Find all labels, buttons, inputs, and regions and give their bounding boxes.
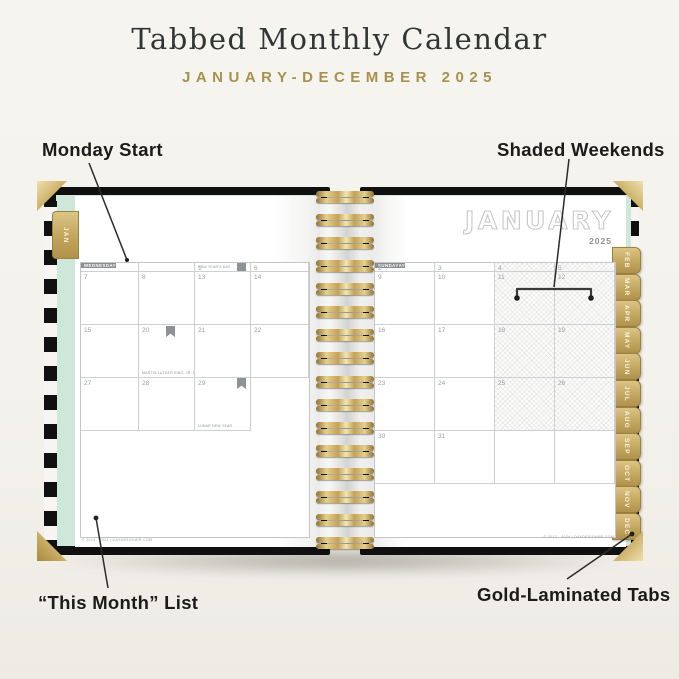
- cover-top-edge: [50, 187, 330, 195]
- calendar-cell: 28: [139, 378, 195, 431]
- day-number: 19: [558, 327, 565, 334]
- calendar-cell: 8: [139, 272, 195, 325]
- day-number: 18: [498, 327, 505, 334]
- callout-label-shaded-weekends: Shaded Weekends: [497, 139, 665, 161]
- tab-jun: JUN: [612, 353, 641, 380]
- day-number: 31: [438, 433, 445, 440]
- day-number: 10: [438, 274, 445, 281]
- bookmark-flag-icon: [166, 326, 175, 337]
- month-name: JANUARY: [465, 206, 614, 235]
- calendar-cell: 24: [435, 378, 495, 431]
- coil-loop: [316, 237, 374, 251]
- calendar-cell: 21: [195, 325, 251, 378]
- day-number: 23: [378, 380, 385, 387]
- day-number: 26: [558, 380, 565, 387]
- tab-feb: FEB: [612, 247, 641, 274]
- calendar-cell: 12: [555, 272, 615, 325]
- tab-dec: DEC: [612, 513, 641, 540]
- coil-loop: [316, 191, 374, 205]
- bookmark-flag-icon: [237, 378, 246, 389]
- cover-bottom-edge: [360, 546, 633, 555]
- callout-label-this-month-list: “This Month” List: [38, 592, 198, 614]
- tab-oct: OCT: [612, 460, 641, 487]
- callout-label-gold-tabs: Gold-Laminated Tabs: [477, 584, 670, 606]
- tab-apr: APR: [612, 300, 641, 327]
- day-number: 14: [254, 274, 261, 281]
- calendar-cell: 1NEW YEAR'S DAY: [195, 263, 251, 272]
- month-year: 2025: [374, 236, 614, 246]
- calendar-cell: 11: [495, 272, 555, 325]
- coil-loop: [316, 445, 374, 459]
- bookmark-flag-icon: [237, 263, 246, 272]
- calendar-cell: 29LUNAR NEW YEAR: [195, 378, 251, 431]
- calendar-cell: 30: [375, 431, 435, 484]
- day-number: 20: [142, 327, 149, 334]
- planner-book: JAN JANUARY 2025 THIS MONTHMONDAYTUESDAY…: [40, 183, 640, 559]
- coil-loop: [316, 376, 374, 390]
- calendar-cell: 16: [375, 325, 435, 378]
- day-number: 15: [84, 327, 91, 334]
- day-number: 12: [558, 274, 565, 281]
- day-number: 17: [438, 327, 445, 334]
- holiday-label: NEW YEAR'S DAY: [198, 265, 230, 269]
- tab-jan-label: JAN: [62, 227, 69, 244]
- day-number: 2: [378, 265, 382, 272]
- coil-loop: [316, 491, 374, 505]
- tab-label: SEP: [623, 438, 630, 455]
- page-title: Tabbed Monthly Calendar: [0, 22, 679, 56]
- calendar-cell: 14: [251, 272, 309, 325]
- tab-label: NOV: [623, 491, 630, 509]
- callout-label-monday-start: Monday Start: [42, 139, 163, 161]
- page-footer-left: © 2013 - 2024 | DAYDESIGNER.COM: [82, 538, 152, 542]
- calendar-cell: 17: [435, 325, 495, 378]
- tab-label: DEC: [623, 518, 630, 535]
- day-number: 28: [142, 380, 149, 387]
- calendar-cell: 13: [195, 272, 251, 325]
- right-page-grid: THURSDAYFRIDAYSATURDAYSUNDAY234591011121…: [374, 262, 616, 538]
- coil-loop: [316, 214, 374, 228]
- day-number: 16: [378, 327, 385, 334]
- holiday-label: MARTIN LUTHER KING, JR. DAY: [142, 371, 195, 375]
- coil-loop: [316, 260, 374, 274]
- calendar-cell: 25: [495, 378, 555, 431]
- month-title-block: JANUARY 2025: [374, 208, 614, 246]
- cover-top-edge: [360, 187, 633, 195]
- calendar-cell: [139, 263, 195, 272]
- calendar-cell: 26: [555, 378, 615, 431]
- holiday-label: LUNAR NEW YEAR: [198, 424, 232, 428]
- calendar-cell: 3: [435, 263, 495, 272]
- left-page-grid: THIS MONTHMONDAYTUESDAYWEDNESDAY1NEW YEA…: [80, 262, 310, 538]
- calendar-cell: 22: [251, 325, 309, 378]
- coil-loop: [316, 514, 374, 528]
- day-number: 6: [254, 265, 258, 272]
- coil-loop: [316, 352, 374, 366]
- coil-loop: [316, 306, 374, 320]
- calendar-cell: 7: [81, 272, 139, 325]
- product-image: Tabbed Monthly Calendar JANUARY-DECEMBER…: [0, 0, 679, 679]
- tab-label: APR: [623, 305, 630, 322]
- tab-may: MAY: [612, 327, 641, 354]
- calendar-cell: [495, 431, 555, 484]
- tab-jan: JAN: [52, 211, 79, 259]
- tab-sep: SEP: [612, 433, 641, 460]
- day-number: 21: [198, 327, 205, 334]
- calendar-cell: 15: [81, 325, 139, 378]
- day-number: 3: [438, 265, 442, 272]
- calendar-cell: 23: [375, 378, 435, 431]
- page-footer-right: © 2013 - 2024 | DAYDESIGNER.COM: [374, 535, 614, 539]
- day-number: 30: [378, 433, 385, 440]
- coil-loop: [316, 283, 374, 297]
- cover-bottom-edge: [50, 546, 330, 555]
- day-number: 27: [84, 380, 91, 387]
- tab-label: OCT: [623, 465, 630, 482]
- calendar-cell: 10: [435, 272, 495, 325]
- coil-loop: [316, 329, 374, 343]
- day-number: 29: [198, 380, 205, 387]
- calendar-cell: [81, 263, 139, 272]
- calendar-cell: [555, 431, 615, 484]
- day-number: 11: [498, 274, 505, 281]
- calendar-cell: 20MARTIN LUTHER KING, JR. DAY: [139, 325, 195, 378]
- calendar-cell: 4: [495, 263, 555, 272]
- day-number: 9: [378, 274, 382, 281]
- calendar-cell: 6: [251, 263, 309, 272]
- tab-aug: AUG: [612, 407, 641, 434]
- tab-label: MAR: [623, 278, 630, 296]
- coil-loop: [316, 399, 374, 413]
- tab-jul: JUL: [612, 380, 641, 407]
- day-number: 5: [558, 265, 562, 272]
- calendar-cell: 2: [375, 263, 435, 272]
- tab-label: FEB: [623, 252, 630, 269]
- calendar-cell: 19: [555, 325, 615, 378]
- tab-label: AUG: [623, 411, 630, 429]
- tab-label: JUL: [623, 386, 630, 402]
- day-number: 24: [438, 380, 445, 387]
- calendar-cell: 5: [555, 263, 615, 272]
- coil-loop: [316, 422, 374, 436]
- calendar-cell: 9: [375, 272, 435, 325]
- tab-label: MAY: [623, 332, 630, 349]
- gold-spiral-binding: [316, 191, 374, 551]
- day-number: 7: [84, 274, 88, 281]
- day-number: 4: [498, 265, 502, 272]
- tab-label: JUN: [623, 359, 630, 376]
- day-number: 13: [198, 274, 205, 281]
- day-number: 25: [498, 380, 505, 387]
- tab-nov: NOV: [612, 486, 641, 513]
- coil-loop: [316, 537, 374, 551]
- tab-mar: MAR: [612, 274, 641, 301]
- calendar-cell: 31: [435, 431, 495, 484]
- coil-loop: [316, 468, 374, 482]
- calendar-cell: 27: [81, 378, 139, 431]
- day-number: 8: [142, 274, 146, 281]
- calendar-cell: 18: [495, 325, 555, 378]
- page-subtitle: JANUARY-DECEMBER 2025: [0, 69, 679, 86]
- day-number: 22: [254, 327, 261, 334]
